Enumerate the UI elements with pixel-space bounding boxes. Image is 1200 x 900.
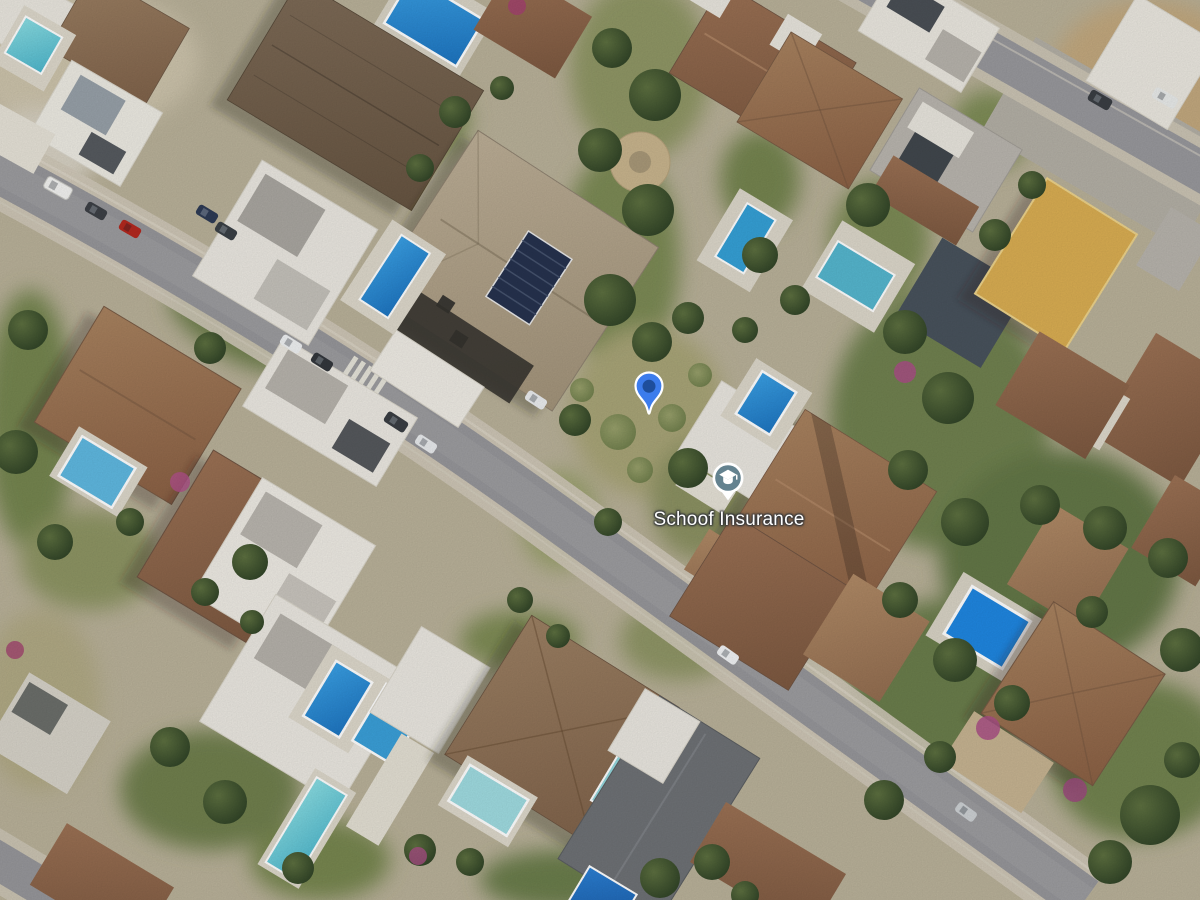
- pin-dot: [643, 380, 656, 393]
- poi-schoof-insurance[interactable]: [711, 462, 745, 502]
- imagery-grain: [0, 0, 1200, 900]
- map-pin-icon: [632, 369, 666, 417]
- aerial-imagery: [0, 0, 1200, 900]
- map-pin-marker[interactable]: [632, 369, 666, 417]
- satellite-map-canvas[interactable]: Schoof Insurance: [0, 0, 1200, 900]
- poi-label[interactable]: Schoof Insurance: [653, 509, 804, 531]
- pin-body: [636, 373, 663, 414]
- school-poi-icon: [711, 462, 745, 502]
